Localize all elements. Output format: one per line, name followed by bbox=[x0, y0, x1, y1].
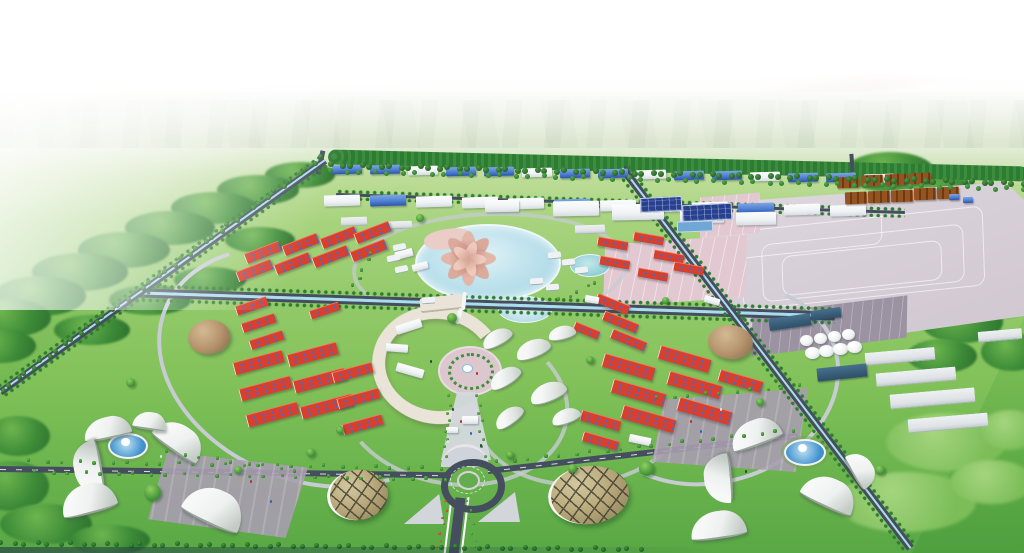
tree bbox=[637, 444, 641, 448]
tree bbox=[85, 470, 89, 474]
tree bbox=[163, 473, 167, 477]
tree bbox=[835, 181, 840, 186]
tree bbox=[544, 454, 548, 458]
fountain-east bbox=[784, 439, 826, 466]
tree bbox=[271, 188, 276, 193]
tree bbox=[360, 162, 366, 168]
person-speck bbox=[452, 408, 454, 411]
tree bbox=[430, 172, 435, 177]
tree bbox=[730, 434, 734, 438]
tree bbox=[361, 545, 366, 550]
factory-north-row2 bbox=[830, 204, 866, 216]
tree bbox=[593, 168, 599, 174]
tree bbox=[289, 465, 293, 469]
person-speck bbox=[250, 480, 252, 483]
tree bbox=[464, 166, 470, 172]
tree bbox=[748, 387, 752, 391]
tree bbox=[152, 543, 157, 548]
parking-strip bbox=[388, 220, 412, 229]
tree bbox=[443, 445, 446, 448]
tree bbox=[865, 177, 871, 183]
tree bbox=[619, 169, 625, 175]
feature-tree bbox=[756, 398, 764, 406]
lakeside-cabana bbox=[529, 278, 542, 286]
tree bbox=[792, 429, 796, 433]
tree bbox=[210, 463, 214, 467]
tree bbox=[930, 179, 936, 185]
tree bbox=[386, 163, 392, 169]
tree bbox=[993, 187, 998, 192]
tree bbox=[982, 180, 988, 186]
tree bbox=[965, 184, 970, 189]
tree bbox=[229, 460, 233, 464]
tree bbox=[251, 205, 256, 210]
tree bbox=[17, 375, 22, 380]
tree bbox=[287, 178, 292, 183]
factory-north-row2 bbox=[784, 203, 820, 215]
tree bbox=[256, 201, 261, 206]
crescent-annex bbox=[386, 343, 409, 353]
tree bbox=[328, 168, 333, 173]
tree bbox=[314, 543, 319, 548]
person-speck bbox=[160, 455, 162, 458]
feature-tree bbox=[336, 426, 344, 434]
tree bbox=[173, 263, 178, 268]
tree bbox=[1001, 179, 1007, 185]
tree bbox=[824, 182, 829, 187]
tree bbox=[129, 543, 134, 548]
storage-tank bbox=[805, 347, 820, 359]
tree bbox=[446, 509, 449, 512]
feature-tree bbox=[662, 297, 669, 304]
tree bbox=[95, 320, 100, 325]
roundabout-island bbox=[457, 471, 480, 490]
tree bbox=[441, 172, 446, 177]
tree bbox=[976, 186, 981, 191]
tree bbox=[479, 404, 482, 407]
tree bbox=[535, 167, 541, 173]
east-fan-plaza bbox=[652, 388, 808, 472]
tree bbox=[388, 466, 392, 470]
tree bbox=[358, 277, 362, 281]
storage-tank bbox=[847, 341, 862, 353]
tree bbox=[561, 167, 567, 173]
factory-north-row2 bbox=[370, 195, 406, 207]
factory-brown bbox=[891, 189, 913, 202]
tree bbox=[632, 171, 638, 177]
tree bbox=[248, 462, 252, 466]
feature-tree bbox=[126, 378, 135, 387]
tree bbox=[411, 477, 415, 481]
tree bbox=[68, 540, 73, 545]
tree bbox=[209, 235, 214, 240]
tree bbox=[619, 448, 623, 452]
tree bbox=[235, 218, 240, 223]
tree bbox=[359, 477, 363, 481]
tree bbox=[328, 161, 334, 167]
factory-large-white bbox=[553, 200, 599, 216]
tree bbox=[671, 172, 677, 178]
tree bbox=[6, 383, 11, 388]
tree bbox=[131, 290, 136, 295]
person-speck bbox=[476, 372, 478, 375]
tree bbox=[300, 544, 305, 549]
tree bbox=[475, 394, 478, 397]
service-building bbox=[462, 416, 478, 424]
fountain-spray bbox=[121, 438, 130, 446]
tree bbox=[378, 475, 382, 479]
tree bbox=[345, 170, 350, 175]
tree bbox=[293, 469, 297, 473]
tree bbox=[779, 386, 783, 390]
tree bbox=[60, 461, 64, 465]
tree bbox=[162, 269, 167, 274]
tree bbox=[470, 509, 473, 512]
tree bbox=[204, 239, 209, 244]
tree bbox=[755, 174, 761, 180]
factory-north-row2 bbox=[324, 194, 360, 206]
tree bbox=[575, 453, 579, 457]
tree bbox=[318, 154, 323, 159]
tree bbox=[53, 349, 58, 354]
tree bbox=[588, 449, 592, 453]
tree bbox=[846, 176, 852, 182]
tree bbox=[313, 476, 317, 480]
factory-blue-small bbox=[963, 197, 973, 203]
tree bbox=[438, 532, 441, 535]
tree bbox=[207, 542, 212, 547]
tree bbox=[523, 545, 528, 550]
tree bbox=[610, 177, 615, 182]
feature-tree bbox=[639, 461, 654, 476]
feature-tree bbox=[447, 313, 457, 323]
tree bbox=[444, 430, 447, 433]
tree bbox=[711, 178, 716, 183]
factory-brown bbox=[914, 188, 936, 201]
tree bbox=[369, 545, 374, 550]
storage-tank bbox=[819, 345, 834, 357]
tree bbox=[131, 471, 135, 475]
tree bbox=[680, 439, 684, 443]
tree bbox=[787, 175, 793, 181]
tree bbox=[477, 546, 482, 551]
lakeside-cabana bbox=[421, 297, 434, 305]
tree bbox=[711, 437, 715, 441]
treatment-basin bbox=[682, 202, 733, 222]
tree bbox=[420, 465, 424, 469]
feature-tree bbox=[875, 465, 885, 475]
tree bbox=[282, 184, 287, 189]
tree bbox=[374, 464, 378, 468]
tree bbox=[327, 474, 331, 478]
tree bbox=[969, 178, 975, 184]
tree bbox=[600, 170, 606, 176]
tree bbox=[1021, 181, 1024, 187]
feature-tree bbox=[506, 451, 514, 459]
tree bbox=[341, 465, 345, 469]
tree bbox=[253, 544, 258, 549]
tree bbox=[570, 176, 575, 181]
tree bbox=[555, 545, 560, 550]
tree bbox=[710, 171, 716, 177]
tree bbox=[48, 354, 53, 359]
tree bbox=[796, 180, 801, 185]
tree bbox=[852, 183, 857, 188]
tree bbox=[807, 182, 812, 187]
tree bbox=[593, 281, 597, 285]
forest-southwest bbox=[70, 525, 150, 553]
factory-large-white bbox=[485, 200, 519, 213]
factory-blue-small bbox=[949, 194, 959, 200]
tree bbox=[768, 181, 773, 186]
tree bbox=[52, 471, 56, 475]
tree bbox=[117, 472, 121, 476]
factory-brown bbox=[868, 190, 890, 203]
parking-strip bbox=[341, 217, 367, 227]
tree bbox=[346, 543, 351, 548]
tree bbox=[872, 177, 878, 183]
tree bbox=[736, 172, 742, 178]
tree bbox=[215, 474, 219, 478]
feature-tree bbox=[306, 448, 315, 457]
storage-tank bbox=[800, 335, 813, 346]
tree bbox=[91, 542, 96, 547]
storage-tank bbox=[814, 333, 827, 344]
tree bbox=[651, 170, 657, 176]
tree bbox=[742, 434, 746, 438]
tree bbox=[424, 476, 428, 480]
person-speck bbox=[470, 432, 472, 435]
tree bbox=[65, 472, 69, 476]
lakeside-cabana bbox=[547, 251, 561, 259]
plaza-fountain bbox=[462, 364, 473, 373]
tree bbox=[593, 545, 598, 550]
tree bbox=[425, 165, 431, 171]
tree bbox=[704, 391, 708, 395]
tree bbox=[807, 175, 813, 181]
tree bbox=[416, 544, 421, 549]
person-speck bbox=[690, 420, 692, 423]
tree bbox=[694, 179, 699, 184]
tree bbox=[554, 169, 560, 175]
tree bbox=[98, 472, 102, 476]
tree bbox=[768, 173, 774, 179]
tree bbox=[447, 394, 450, 397]
tree bbox=[369, 251, 373, 255]
treatment-basin bbox=[640, 195, 683, 212]
tree bbox=[649, 444, 653, 448]
tree bbox=[92, 461, 96, 465]
tree bbox=[722, 180, 727, 185]
tree bbox=[184, 453, 188, 457]
tree bbox=[606, 449, 610, 453]
feature-tree bbox=[586, 356, 594, 364]
tree bbox=[773, 429, 777, 433]
tree bbox=[59, 542, 64, 547]
parking-strip bbox=[575, 224, 605, 234]
person-speck bbox=[430, 360, 432, 363]
lakeside-cabana bbox=[545, 284, 558, 292]
tree bbox=[291, 544, 296, 549]
tree bbox=[178, 256, 183, 261]
factory-brown bbox=[845, 192, 867, 205]
tree bbox=[673, 396, 677, 400]
feature-tree bbox=[234, 466, 242, 474]
storage-tank bbox=[828, 331, 841, 342]
tree bbox=[578, 547, 583, 552]
lakeside-cabana bbox=[561, 258, 575, 266]
service-building bbox=[446, 427, 458, 433]
tree bbox=[46, 460, 50, 464]
tree bbox=[891, 178, 897, 184]
tree bbox=[483, 167, 489, 173]
tree bbox=[575, 290, 579, 294]
feature-tree bbox=[144, 484, 161, 501]
tree bbox=[392, 477, 396, 481]
tree bbox=[666, 177, 671, 182]
tree bbox=[616, 547, 621, 552]
treatment-basin bbox=[677, 220, 713, 232]
tree bbox=[515, 168, 521, 174]
tree bbox=[513, 459, 517, 463]
tree bbox=[145, 462, 149, 466]
tree bbox=[522, 168, 528, 174]
tree bbox=[557, 454, 561, 458]
tree bbox=[779, 181, 784, 186]
feature-tree bbox=[568, 464, 577, 473]
tree bbox=[458, 171, 463, 176]
tree bbox=[462, 546, 467, 551]
tree bbox=[599, 176, 604, 181]
tree bbox=[444, 478, 448, 482]
person-speck bbox=[460, 420, 462, 423]
factory-large-white bbox=[736, 211, 776, 225]
tree bbox=[500, 546, 505, 551]
tree bbox=[437, 166, 443, 172]
tree bbox=[36, 540, 41, 545]
tree bbox=[471, 532, 474, 535]
tree bbox=[655, 178, 660, 183]
tree bbox=[943, 177, 949, 183]
tree bbox=[220, 229, 225, 234]
person-speck bbox=[745, 470, 747, 473]
tree bbox=[399, 165, 405, 171]
person-speck bbox=[720, 408, 722, 411]
tree bbox=[937, 185, 942, 190]
factory-north-row2 bbox=[416, 196, 452, 208]
person-speck bbox=[480, 444, 482, 447]
person-speck bbox=[270, 500, 272, 503]
tree bbox=[904, 178, 910, 184]
tree bbox=[469, 173, 474, 178]
storage-tank bbox=[833, 343, 848, 355]
tree bbox=[21, 542, 26, 547]
fountain-spray bbox=[798, 444, 807, 452]
person-speck bbox=[700, 430, 702, 433]
person-speck bbox=[447, 440, 449, 443]
tree bbox=[298, 171, 303, 176]
tree bbox=[245, 542, 250, 547]
tree bbox=[32, 366, 37, 371]
tree bbox=[216, 456, 220, 460]
tree bbox=[532, 546, 537, 551]
storage-tank bbox=[842, 329, 855, 340]
lakeside-cabana bbox=[574, 266, 588, 274]
tree bbox=[736, 390, 740, 394]
feature-tree bbox=[416, 214, 424, 222]
tree bbox=[360, 268, 364, 272]
aerial-masterplan-rendering bbox=[0, 0, 1024, 553]
tree bbox=[184, 543, 189, 548]
tree bbox=[440, 467, 444, 471]
tree bbox=[268, 544, 273, 549]
fields-southeast bbox=[950, 460, 1024, 504]
tree bbox=[125, 460, 129, 464]
